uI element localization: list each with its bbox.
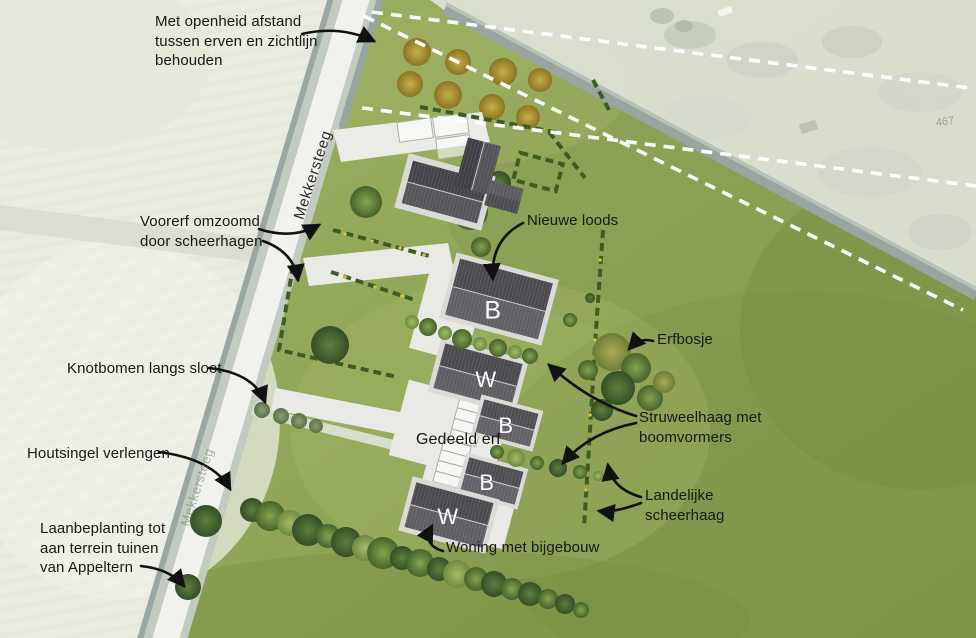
site-plan: Met openheid afstand tussen erven en zic… xyxy=(0,0,976,638)
annotation-landelijke-scheerhaag: Landelijke scheerhaag xyxy=(645,486,740,525)
building-label-loods: B xyxy=(484,297,501,326)
knotboom xyxy=(273,408,289,424)
building-label-bijgebouw-zuid: B xyxy=(479,470,494,496)
annotation-struweelhaag: Struweelhaag met boomvormers xyxy=(639,408,784,447)
voorerf-tree xyxy=(311,326,349,364)
label-gedeeld-erf: Gedeeld erf xyxy=(416,430,501,451)
knotboom xyxy=(291,413,307,429)
annotation-nieuwe-loods: Nieuwe loods xyxy=(527,211,618,231)
annotation-knotbomen: Knotbomen langs sloot xyxy=(67,359,222,379)
annotation-laanbeplanting: Laanbeplanting tot aan terrein tuinen va… xyxy=(40,519,182,578)
annotation-houtsingel: Houtsingel verlengen xyxy=(27,444,170,464)
knotboom xyxy=(309,419,323,433)
building-label-woning-noord: W xyxy=(475,367,496,393)
annotation-woning: Woning met bijgebouw xyxy=(446,538,599,558)
annotation-openheid: Met openheid afstand tussen erven en zic… xyxy=(155,12,337,71)
laanboom xyxy=(175,574,201,600)
knotboom xyxy=(254,402,270,418)
building-label-woning-zuid: W xyxy=(437,504,458,530)
annotation-erfbosje: Erfbosje xyxy=(657,330,713,350)
annotation-voorerf: Voorerf omzoomd door scheerhagen xyxy=(140,212,282,251)
building-label-bijgebouw-noord: B xyxy=(498,413,513,439)
parcel-number: 467 xyxy=(935,115,955,129)
